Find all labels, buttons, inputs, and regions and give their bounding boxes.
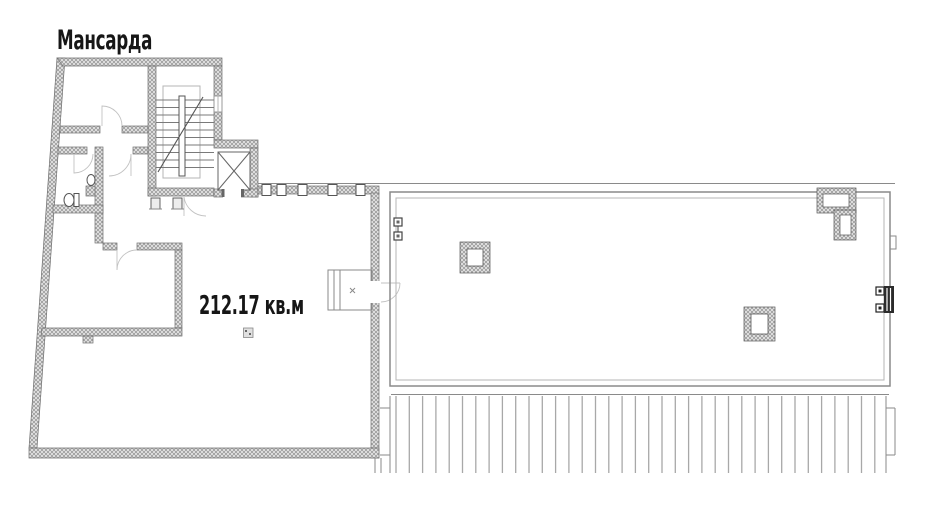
roof-stripes [375,395,895,474]
terrace-column-2 [744,307,775,341]
vent-unit-icon [876,286,894,313]
plan-title: Мансарда [57,25,152,56]
storage-box [328,270,372,310]
stripe-bracket-right [886,408,895,455]
door-arc [102,106,122,126]
door-arc [184,197,206,216]
terrace-column [460,242,490,273]
wall-extension-lines [375,458,381,473]
interior-walls [53,126,148,243]
floor-plan-drawing [0,0,929,522]
column-posts [149,198,184,209]
terrace-inner-line [396,198,884,380]
inner-room-walls [41,243,182,343]
outer-walls [29,58,379,458]
wall-bump [83,336,93,343]
edge-notch [890,236,896,249]
area-label: 212.17 кв.м [199,291,304,321]
door-arc [117,250,137,270]
staircase [156,86,214,178]
left-wing [29,58,400,458]
stripe-bracket-left [380,408,390,455]
sink-icon [87,175,95,186]
rooftop-structure [817,188,856,240]
terrace-border [390,192,890,386]
door-arc [74,154,93,173]
floor-plan-canvas: Мансарда 212.17 кв.м [0,0,929,522]
area-marker [244,328,254,338]
stair-window [214,96,222,112]
door-arc [109,154,131,176]
toilet-icon [64,194,79,207]
drain-symbol [394,218,402,240]
terrace [258,184,896,387]
